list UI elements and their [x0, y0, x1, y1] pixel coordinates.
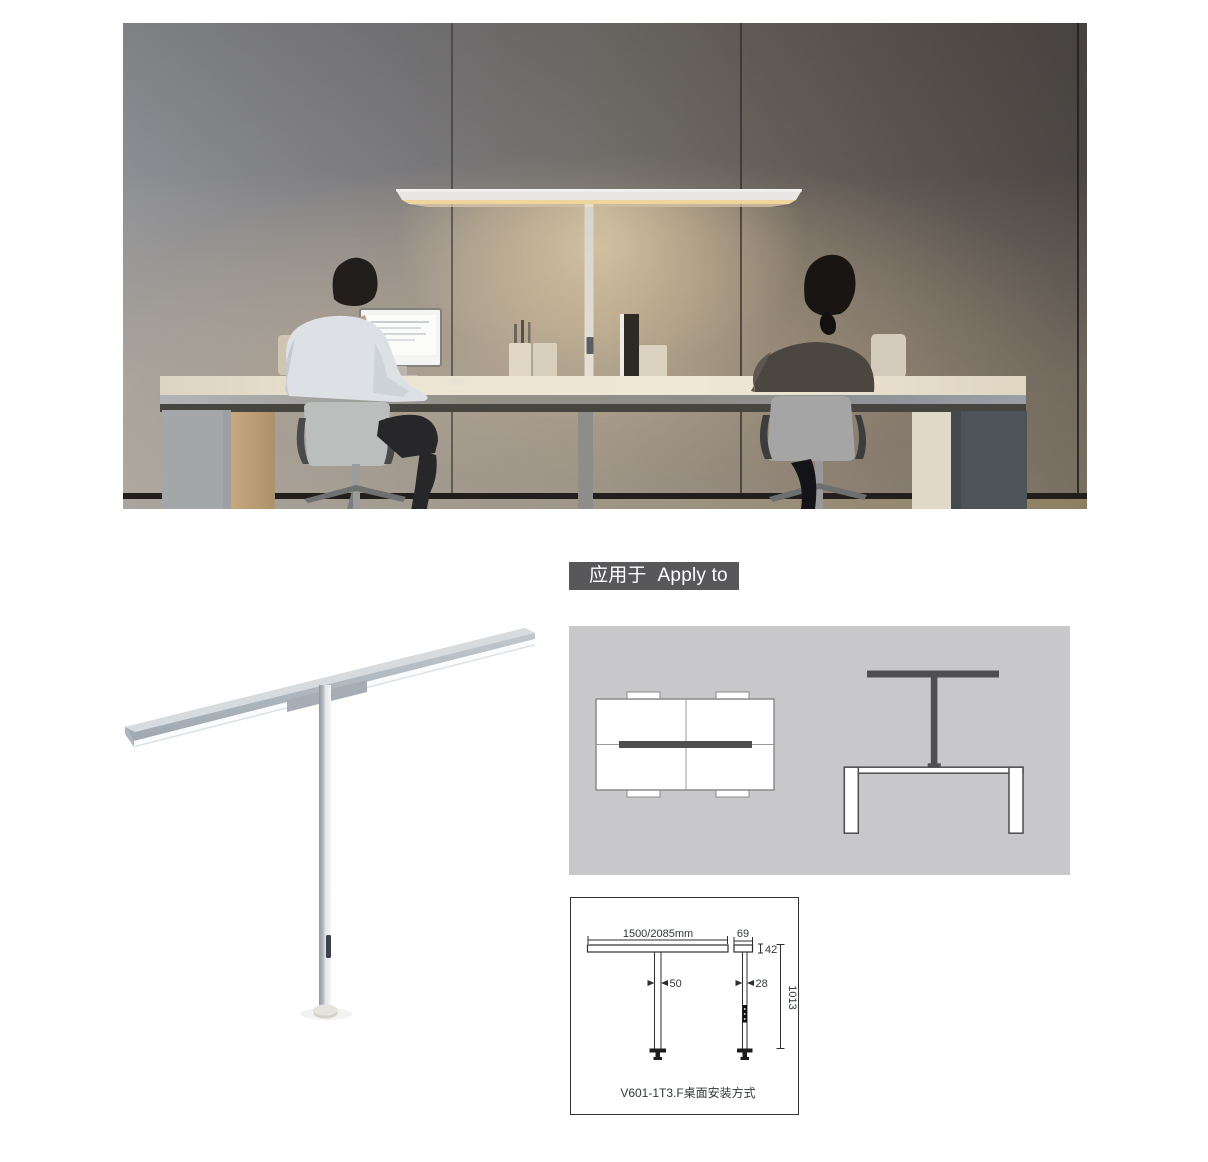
svg-text:1500/2085mm: 1500/2085mm	[623, 928, 693, 940]
svg-text:50: 50	[670, 978, 682, 990]
svg-text:42: 42	[765, 944, 777, 956]
svg-text:1013: 1013	[786, 985, 798, 1009]
svg-text:V601-1T3.F桌面安装方式: V601-1T3.F桌面安装方式	[620, 1085, 755, 1100]
svg-text:28: 28	[756, 978, 768, 990]
svg-text:69: 69	[737, 928, 749, 940]
